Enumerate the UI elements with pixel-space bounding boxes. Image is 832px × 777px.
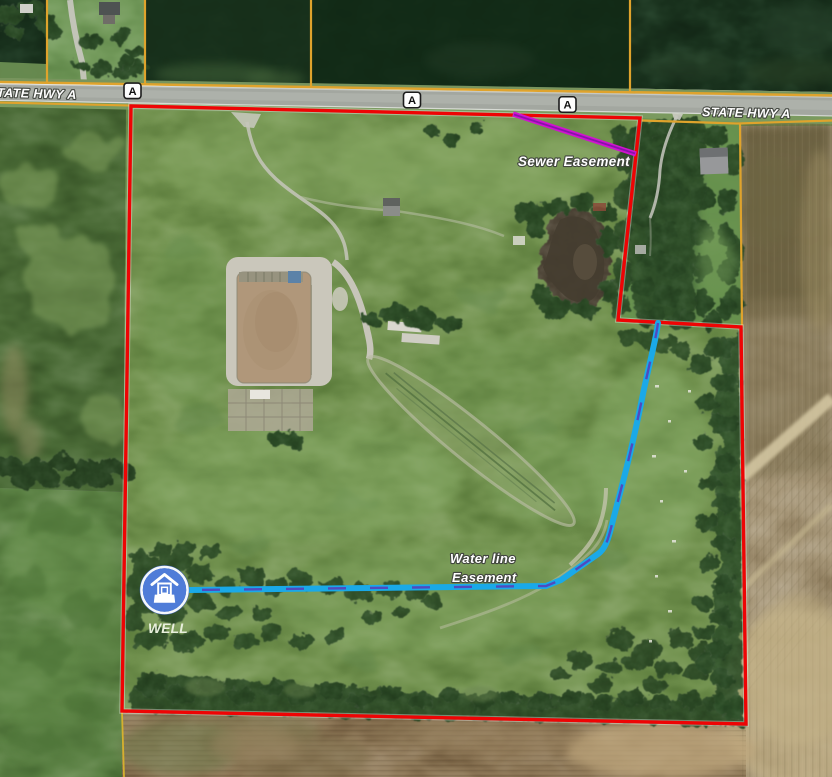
svg-text:A: A [563,100,571,112]
svg-text:Easement: Easement [452,570,517,585]
svg-text:A: A [128,86,136,98]
svg-text:Water line: Water line [450,551,516,566]
svg-text:Sewer Easement: Sewer Easement [518,154,630,169]
svg-text:WELL: WELL [148,621,188,636]
svg-text:A: A [408,95,416,107]
svg-text:STATE HWY A: STATE HWY A [0,86,77,102]
svg-text:STATE HWY A: STATE HWY A [702,105,791,121]
